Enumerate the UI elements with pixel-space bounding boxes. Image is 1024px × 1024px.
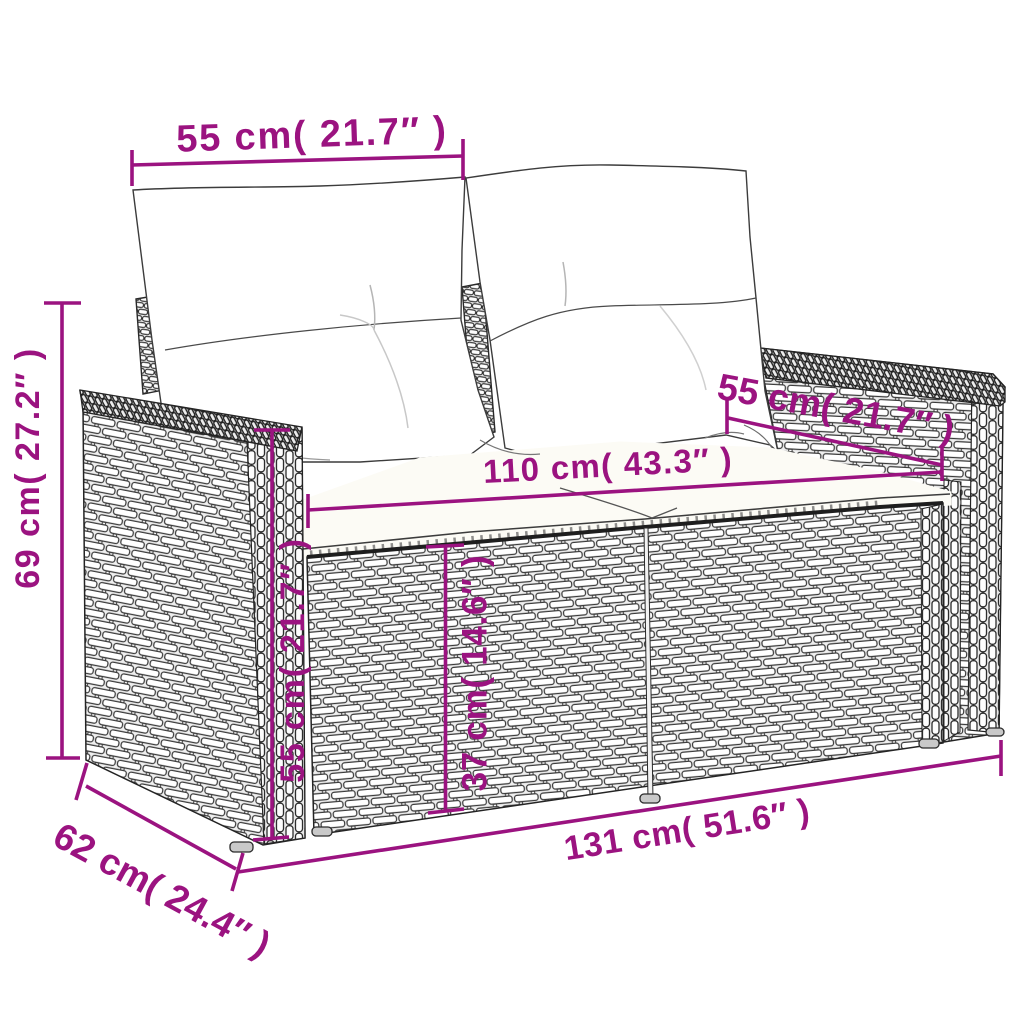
svg-text:69 cm( 27.2″ ): 69 cm( 27.2″ ) <box>9 347 47 588</box>
svg-text:37 cm( 14.6″ ): 37 cm( 14.6″ ) <box>456 555 495 792</box>
svg-text:55 cm( 21.7″ ): 55 cm( 21.7″ ) <box>274 537 312 783</box>
